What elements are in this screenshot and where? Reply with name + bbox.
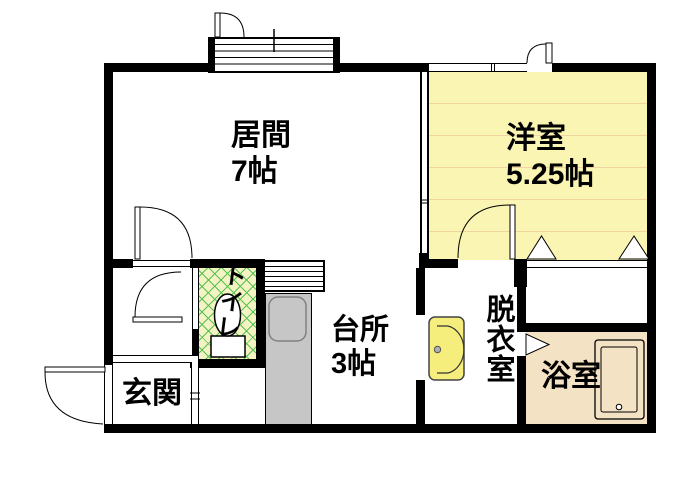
wall-western-bottom — [429, 259, 458, 268]
kitchen-counter-window — [263, 260, 325, 292]
toilet-door — [192, 268, 199, 329]
wall-outer-top-a — [104, 63, 208, 72]
closet-door-track — [527, 260, 647, 268]
label-bathroom: 浴室 — [541, 359, 601, 395]
wall-toilet-right — [256, 259, 265, 368]
wall-mid-pillar — [514, 259, 527, 287]
wall-outer-bottom — [104, 424, 656, 433]
kitchen-counter — [265, 293, 312, 425]
door-swing-icon — [133, 272, 182, 322]
wall-outer-top-b — [340, 63, 430, 72]
entrance-door-opening — [104, 365, 113, 424]
wall-kitchen-dressing-b — [416, 380, 425, 425]
wall-outer-top-c — [552, 63, 656, 72]
hall-door-opening — [133, 260, 190, 267]
entrance-door-swing-icon — [45, 367, 105, 424]
label-dressing-room: 脱衣室 — [477, 294, 519, 394]
wall-kitchen-dressing-a — [416, 268, 425, 315]
label-kitchen: 台所3帖 — [331, 313, 389, 381]
wall-toilet-bottom — [190, 359, 265, 368]
living-western-partition — [420, 72, 429, 253]
genkan-divider — [191, 362, 199, 424]
door-swing-icon — [527, 43, 552, 63]
living-window — [208, 37, 340, 73]
wall-hall-left — [113, 259, 133, 268]
genkan-step — [113, 355, 198, 363]
label-western-room: 洋室5.25帖 — [506, 121, 594, 193]
door-swing-icon — [135, 207, 192, 259]
wall-closet-bottom — [517, 323, 656, 332]
wall-partition-post — [419, 253, 429, 268]
washbasin-icon — [429, 317, 464, 380]
western-window — [429, 63, 527, 72]
wall-outer-right — [647, 63, 656, 433]
door-swing-icon — [215, 13, 244, 37]
floorplan: 居間7帖 洋室5.25帖 台所3帖 浴室 玄関 脱衣室 トイレ — [0, 0, 686, 484]
label-entrance: 玄関 — [122, 376, 182, 412]
label-living-room: 居間7帖 — [231, 118, 291, 190]
